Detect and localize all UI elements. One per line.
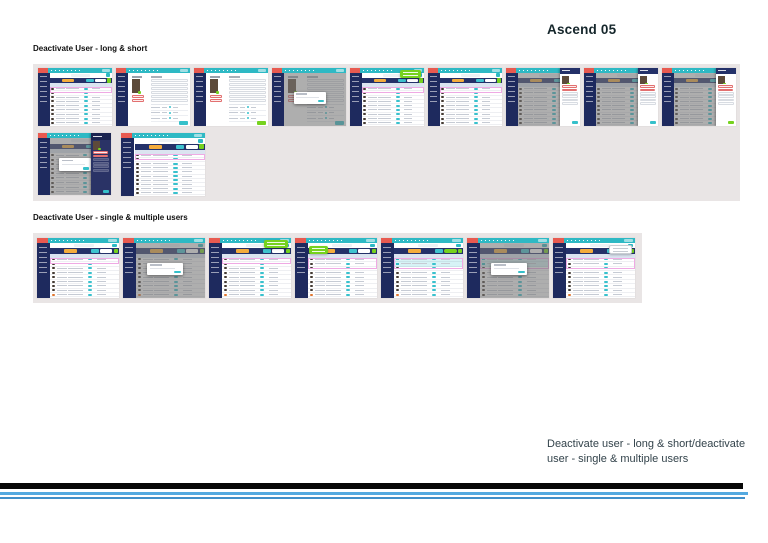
b <box>240 277 254 278</box>
b <box>153 171 168 172</box>
b <box>240 107 245 108</box>
modal <box>491 263 527 275</box>
tg <box>173 188 177 190</box>
tg <box>84 113 88 115</box>
tg <box>88 294 92 296</box>
b <box>269 259 278 260</box>
tg <box>474 88 478 90</box>
tg <box>260 285 264 287</box>
storyboard-band-long-short <box>33 64 740 201</box>
b <box>66 92 79 93</box>
b <box>141 163 151 164</box>
b <box>141 180 151 181</box>
btn-y <box>64 249 77 253</box>
b <box>613 277 622 278</box>
b <box>173 112 178 113</box>
av <box>136 183 139 185</box>
b <box>315 285 325 286</box>
b <box>446 105 455 106</box>
rbtn <box>640 85 655 87</box>
b <box>355 263 364 264</box>
b <box>56 105 65 106</box>
side <box>584 73 596 126</box>
b <box>441 268 450 269</box>
b <box>240 263 254 264</box>
b <box>153 192 168 193</box>
badge <box>723 83 726 85</box>
av <box>568 281 571 283</box>
tg <box>474 113 478 115</box>
av <box>568 267 571 269</box>
btn-gdot <box>286 249 290 253</box>
b <box>141 159 151 160</box>
field <box>718 99 735 102</box>
tgs <box>247 106 249 108</box>
field <box>718 92 735 95</box>
b <box>315 290 325 291</box>
tg <box>346 267 350 269</box>
b <box>229 294 239 295</box>
b <box>441 281 450 282</box>
tg <box>260 289 264 291</box>
tg <box>173 179 177 181</box>
b <box>229 259 239 260</box>
dw-hbar <box>640 70 648 71</box>
b <box>56 109 65 110</box>
modal <box>147 263 183 275</box>
b <box>613 281 622 282</box>
b <box>97 272 106 273</box>
av <box>136 171 139 173</box>
field <box>718 95 735 98</box>
dots <box>675 70 706 71</box>
b <box>584 277 598 278</box>
footer-stripe-black <box>0 483 743 489</box>
tg <box>173 175 177 177</box>
tg <box>604 281 608 283</box>
b <box>404 118 412 119</box>
av <box>136 154 139 156</box>
av <box>310 276 313 278</box>
b <box>412 259 426 260</box>
field <box>151 95 188 98</box>
b <box>584 290 598 291</box>
field <box>93 162 110 165</box>
thumb-user-list-bulk-tooltip <box>295 238 377 298</box>
b <box>482 101 490 102</box>
dw-avwrap <box>718 76 725 84</box>
dw-body <box>638 74 658 126</box>
b <box>412 294 426 295</box>
b <box>66 109 79 110</box>
tg <box>88 276 92 278</box>
av <box>224 281 227 283</box>
dr-title <box>229 76 240 77</box>
b <box>153 167 168 168</box>
m-btn <box>518 271 525 274</box>
tg <box>396 105 400 107</box>
b <box>97 290 106 291</box>
tg <box>173 192 177 194</box>
b <box>326 263 340 264</box>
b <box>573 259 583 260</box>
dots <box>51 70 82 71</box>
b <box>153 176 168 177</box>
tg <box>84 105 88 107</box>
b <box>57 277 67 278</box>
b <box>56 88 65 89</box>
tg <box>88 263 92 265</box>
field <box>562 92 579 95</box>
b <box>378 114 391 115</box>
tg <box>84 88 88 90</box>
sidelines <box>274 76 282 104</box>
b <box>584 294 598 295</box>
av <box>51 109 54 111</box>
b <box>153 180 168 181</box>
main <box>362 73 424 126</box>
side <box>506 73 518 126</box>
b <box>92 122 100 123</box>
b <box>97 285 106 286</box>
storyboard-band-single-multiple <box>33 233 642 303</box>
dots <box>223 240 257 241</box>
rows <box>566 258 634 298</box>
b <box>401 272 411 273</box>
b <box>92 101 100 102</box>
field <box>93 165 110 168</box>
rbtn <box>718 85 733 87</box>
b <box>68 277 82 278</box>
b <box>368 92 377 93</box>
search-box <box>461 74 480 77</box>
av <box>396 289 399 291</box>
tg <box>474 122 478 124</box>
b <box>446 118 455 119</box>
b <box>326 277 340 278</box>
b <box>355 272 364 273</box>
row <box>222 293 290 297</box>
dots <box>51 240 85 241</box>
b <box>412 290 426 291</box>
rbtn <box>210 99 223 102</box>
b <box>456 109 469 110</box>
rbtn <box>132 95 145 98</box>
b <box>368 114 377 115</box>
b <box>162 112 167 113</box>
dots <box>285 70 316 71</box>
b <box>584 259 598 260</box>
b <box>378 109 391 110</box>
dr <box>151 76 188 125</box>
b <box>153 163 168 164</box>
main <box>136 243 205 298</box>
dl-name <box>210 76 220 77</box>
ln <box>312 251 325 252</box>
av <box>51 105 54 107</box>
av <box>52 276 55 278</box>
tg <box>346 258 350 260</box>
b <box>229 263 239 264</box>
b <box>441 277 450 278</box>
b <box>326 268 340 269</box>
dots <box>481 240 515 241</box>
b <box>456 88 469 89</box>
b <box>441 294 450 295</box>
main <box>50 73 112 126</box>
badge <box>138 91 142 94</box>
tg <box>432 289 436 291</box>
dropdown-tooltip <box>609 245 632 255</box>
b <box>368 88 377 89</box>
av <box>568 272 571 274</box>
field <box>562 102 579 105</box>
b <box>378 101 391 102</box>
b <box>162 118 167 119</box>
b <box>326 259 340 260</box>
av <box>396 285 399 287</box>
av <box>363 122 366 124</box>
b <box>401 281 411 282</box>
b <box>92 92 100 93</box>
b <box>404 114 412 115</box>
b <box>269 268 278 269</box>
b <box>56 114 65 115</box>
b <box>153 188 168 189</box>
sidelines <box>430 76 438 104</box>
b <box>456 118 469 119</box>
sidelines <box>125 247 134 276</box>
thumb-user-list <box>37 238 119 298</box>
av <box>224 272 227 274</box>
tg <box>346 285 350 287</box>
tg <box>88 272 92 274</box>
rbtn <box>640 89 655 91</box>
field <box>151 79 188 82</box>
drawer <box>716 68 736 126</box>
tg <box>604 263 608 265</box>
dr-title <box>151 76 162 77</box>
av <box>224 258 227 260</box>
search-box <box>383 74 402 77</box>
b <box>66 114 79 115</box>
b <box>182 159 191 160</box>
row <box>135 191 205 195</box>
av <box>396 281 399 283</box>
dots <box>519 70 550 71</box>
b <box>482 114 490 115</box>
b <box>456 92 469 93</box>
main <box>222 243 291 298</box>
b <box>441 285 450 286</box>
thumb-user-list-success-toast <box>209 238 291 298</box>
dl-avwrap <box>132 79 140 93</box>
btn-t <box>263 249 271 253</box>
b <box>446 97 455 98</box>
b <box>355 285 364 286</box>
ln <box>613 248 628 249</box>
b <box>315 259 325 260</box>
tg <box>260 281 264 283</box>
av <box>51 88 54 90</box>
rows <box>362 87 424 125</box>
dtable <box>229 104 266 122</box>
b <box>240 259 254 260</box>
dw-body <box>560 74 580 126</box>
topsq <box>624 239 632 242</box>
tg <box>604 294 608 296</box>
topsq <box>108 239 116 242</box>
b <box>573 263 583 264</box>
b <box>441 272 450 273</box>
field <box>229 91 266 94</box>
btn-y <box>580 249 593 253</box>
b <box>66 97 79 98</box>
tg <box>432 272 436 274</box>
b <box>251 118 256 119</box>
b <box>401 294 411 295</box>
thumb-user-list <box>38 68 112 126</box>
btn-y <box>408 249 421 253</box>
field <box>151 87 188 90</box>
av <box>363 96 366 98</box>
av <box>136 192 139 194</box>
b <box>441 263 450 264</box>
av <box>52 294 55 296</box>
row <box>440 121 502 125</box>
b <box>57 268 67 269</box>
b <box>97 268 106 269</box>
btn-gdot <box>419 78 423 82</box>
b <box>153 155 168 156</box>
m-line <box>150 268 176 269</box>
av <box>441 118 444 120</box>
av <box>136 158 139 160</box>
b <box>269 294 278 295</box>
tg <box>604 289 608 291</box>
m-title <box>296 93 307 94</box>
b <box>182 163 191 164</box>
b <box>57 281 67 282</box>
topsq <box>452 239 460 242</box>
b <box>412 277 426 278</box>
thumb-user-list <box>121 133 205 196</box>
footer-caption: Deactivate user - long & short/deactivat… <box>547 437 765 468</box>
m-line <box>62 164 85 165</box>
av <box>51 92 54 94</box>
search-sq <box>112 244 117 248</box>
av <box>52 272 55 274</box>
tg <box>84 109 88 111</box>
tg <box>260 263 264 265</box>
tgs <box>169 117 171 119</box>
av <box>396 294 399 296</box>
btn-t <box>398 79 405 83</box>
dr <box>229 76 266 125</box>
success-tooltip <box>400 70 421 78</box>
b <box>66 105 79 106</box>
tg <box>84 122 88 124</box>
tg <box>474 96 478 98</box>
side <box>467 243 480 298</box>
tg <box>432 258 436 260</box>
b <box>584 272 598 273</box>
main <box>206 73 268 126</box>
tg <box>88 267 92 269</box>
section-heading-long-short: Deactivate User - long & short <box>33 44 147 53</box>
tg <box>396 113 400 115</box>
thumb-user-list <box>428 68 502 126</box>
b <box>355 281 364 282</box>
tg <box>173 167 177 169</box>
b <box>92 105 100 106</box>
field <box>640 99 657 102</box>
b <box>378 105 391 106</box>
row <box>308 293 376 297</box>
dw-avwrap <box>640 76 647 84</box>
av <box>568 289 571 291</box>
b <box>151 118 161 119</box>
thumb-user-detail-confirm-modal <box>272 68 346 126</box>
sidelines <box>352 76 360 104</box>
b <box>412 281 426 282</box>
btn-gdot <box>497 78 501 82</box>
b <box>240 285 254 286</box>
m-btn <box>318 100 324 103</box>
side <box>209 243 222 298</box>
b <box>153 159 168 160</box>
main <box>440 73 502 126</box>
dots <box>441 70 472 71</box>
b <box>68 259 82 260</box>
av <box>363 105 366 107</box>
av <box>396 276 399 278</box>
action <box>257 121 266 124</box>
av <box>363 100 366 102</box>
dw-avwrap <box>93 141 100 149</box>
dl <box>210 76 225 125</box>
rows <box>135 154 205 196</box>
ln <box>267 245 285 246</box>
b <box>97 281 106 282</box>
btn-w <box>485 79 495 83</box>
ln <box>403 75 418 76</box>
b <box>251 112 256 113</box>
tg <box>604 267 608 269</box>
av <box>52 263 55 265</box>
dw-btn <box>728 121 735 124</box>
av <box>52 285 55 287</box>
tg <box>84 96 88 98</box>
dots <box>395 240 429 241</box>
main <box>50 243 119 298</box>
av <box>441 92 444 94</box>
b <box>229 268 239 269</box>
b <box>92 118 100 119</box>
dots <box>129 70 160 71</box>
btn-t <box>176 145 184 149</box>
b <box>401 263 411 264</box>
rows <box>308 258 376 298</box>
btn-t <box>91 249 99 253</box>
tg <box>432 263 436 265</box>
b <box>57 290 67 291</box>
b <box>446 114 455 115</box>
sidelines <box>39 247 48 276</box>
b <box>613 272 622 273</box>
b <box>315 268 325 269</box>
b <box>97 263 106 264</box>
